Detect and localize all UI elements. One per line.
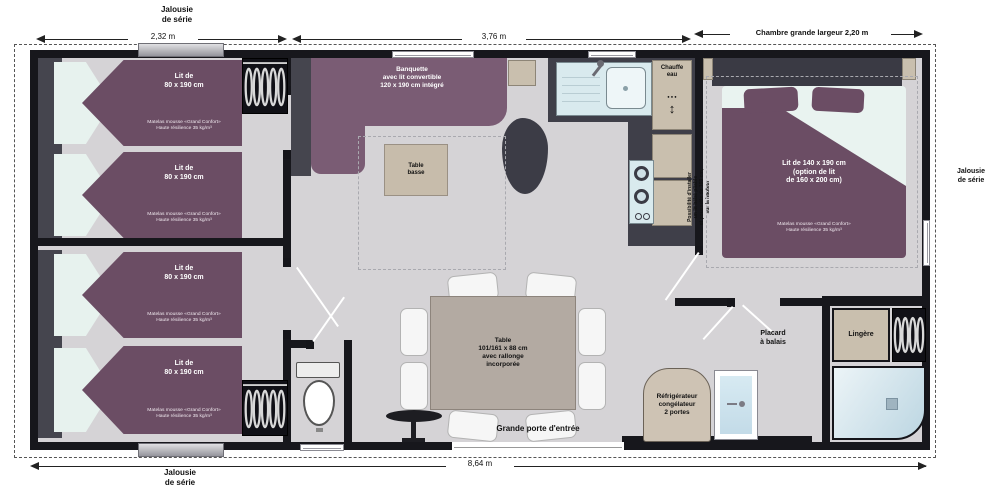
- linen-cabinet: Lingère: [832, 308, 890, 362]
- banquette-label: Banquette avec lit convertible 120 x 190…: [320, 66, 504, 90]
- dim-room-label: Chambre grande largeur 2,20 m: [733, 28, 891, 37]
- chair: [400, 308, 428, 356]
- shower-drain: [886, 398, 898, 410]
- dining-table-label: Table 101/161 x 88 cm avec rallonge inco…: [478, 337, 527, 369]
- hanger-icon: [893, 309, 925, 361]
- chair: [578, 362, 606, 410]
- bathroom-door: [714, 370, 758, 440]
- single-bed-4: Lit de 80 x 190 cm Matelas mousse «Grand…: [40, 346, 242, 434]
- chair: [578, 308, 606, 356]
- burner-icon: [634, 189, 649, 204]
- door-hinge: [283, 258, 291, 267]
- bed-pillow: [811, 87, 864, 114]
- pedestal-table-base: [402, 438, 425, 442]
- coffee-table: Table basse: [384, 144, 448, 196]
- coffee-table-label: Table basse: [407, 163, 424, 178]
- toilet-cistern: [296, 362, 340, 378]
- master-bed: Lit de 140 x 190 cm (option de lit de 16…: [722, 86, 906, 258]
- bed-label: Lit de 80 x 190 cm: [130, 360, 238, 377]
- kitchen-cabinet: [652, 180, 692, 226]
- wall-bathroom-left: [822, 296, 830, 442]
- stove-knob: [643, 213, 650, 220]
- chair: [400, 362, 428, 410]
- hanger-icon: [243, 381, 287, 435]
- window: [392, 51, 474, 58]
- pedestal-table-stem: [411, 420, 416, 440]
- side-cabinet: [508, 60, 536, 86]
- banquette-backrest: [291, 58, 311, 176]
- water-heater-label: Chauffe eau: [653, 65, 691, 80]
- dim-arrow-icon: [918, 462, 927, 470]
- dim-left-value: 2,32 m: [128, 32, 198, 41]
- wall-master-bottom: [780, 298, 826, 306]
- window: [300, 444, 344, 451]
- bed-mattress-label: Matelas mousse «Grand Confort» Haute rés…: [128, 408, 240, 420]
- wall: [283, 158, 291, 240]
- toilet-flush: [316, 428, 323, 432]
- door-handle-icon: [739, 401, 745, 407]
- master-bed-label: Lit de 140 x 190 cm (option de lit de 16…: [739, 160, 889, 186]
- bed-label: Lit de 80 x 190 cm: [130, 165, 238, 182]
- water-heater-dots-icon: ● ● ●: [653, 95, 691, 100]
- wardrobe-hangers: [242, 58, 288, 114]
- bed-mattress-label: Matelas mousse «Grand Confort» Haute rés…: [128, 120, 240, 132]
- bed-pillow: [743, 87, 798, 114]
- broom-closet-label: Placard à balais: [742, 330, 804, 347]
- dim-arrow-icon: [278, 35, 287, 43]
- jalousie-window: [138, 443, 224, 457]
- single-bed-2: Lit de 80 x 190 cm Matelas mousse «Grand…: [40, 152, 242, 238]
- entrance-label: Grande porte d'entrée: [458, 424, 618, 434]
- water-heater-arrow-icon: ↕: [653, 101, 691, 117]
- wall-wc: [344, 340, 352, 442]
- jalousie-top-label: Jalousie de série: [132, 5, 222, 25]
- door-hinge: [283, 150, 291, 159]
- door-handle-icon: [727, 403, 737, 405]
- window: [588, 51, 636, 58]
- burner-icon: [634, 166, 649, 181]
- single-bed-1: Lit de 80 x 190 cm Matelas mousse «Grand…: [40, 60, 242, 146]
- jalousie-window: [138, 43, 224, 57]
- dim-arrow-icon: [914, 30, 923, 38]
- door-panel: [720, 376, 752, 434]
- window: [923, 220, 930, 266]
- dim-total-value: 8,64 m: [446, 459, 514, 468]
- kitchen-cabinet: [652, 134, 692, 178]
- bed-mattress-label: Matelas mousse «Grand Confort» Haute rés…: [128, 312, 240, 324]
- dim-line-room-r: [891, 34, 915, 35]
- shower: [832, 366, 926, 440]
- dim-arrow-icon: [292, 35, 301, 43]
- wall-master-bottom: [675, 298, 727, 306]
- hanger-icon: [243, 59, 287, 113]
- floorplan: Jalousie de série 2,32 m 3,76 m Chambre …: [0, 0, 1000, 502]
- stove: [629, 160, 654, 224]
- stove-knob: [635, 213, 642, 220]
- dim-arrow-icon: [30, 462, 39, 470]
- bed-label: Lit de 80 x 190 cm: [130, 265, 238, 282]
- wardrobe-hangers: [892, 308, 926, 362]
- dim-arrow-icon: [36, 35, 45, 43]
- wall-bathroom-top: [826, 296, 922, 306]
- dim-line-room-l: [702, 34, 730, 35]
- fridge-label: Réfrigérateur congélateur 2 portes: [657, 393, 698, 417]
- bed-label: Lit de 80 x 190 cm: [130, 73, 238, 90]
- single-bed-3: Lit de 80 x 190 cm Matelas mousse «Grand…: [40, 252, 242, 338]
- entrance-opening: [452, 442, 624, 451]
- fridge: Réfrigérateur congélateur 2 portes: [643, 368, 711, 442]
- master-bed-mattress-label: Matelas mousse «Grand Confort» Haute rés…: [740, 222, 888, 234]
- jalousie-bottom-label: Jalousie de série: [134, 468, 226, 488]
- dining-table: Table 101/161 x 88 cm avec rallonge inco…: [430, 296, 576, 410]
- door-hinge: [283, 330, 291, 339]
- water-heater: Chauffe eau ● ● ● ↕: [652, 60, 692, 130]
- dim-arrow-icon: [682, 35, 691, 43]
- wardrobe-hangers: [242, 380, 288, 436]
- jalousie-right-label: Jalousie de série: [944, 168, 998, 185]
- entrance-threshold: [454, 447, 622, 448]
- sink-drain: [623, 86, 628, 91]
- wall-bedroom-divider: [38, 238, 283, 246]
- dim-mid-value: 3,76 m: [462, 32, 526, 41]
- linen-cabinet-label: Lingère: [848, 331, 873, 340]
- bed-mattress-label: Matelas mousse «Grand Confort» Haute rés…: [128, 212, 240, 224]
